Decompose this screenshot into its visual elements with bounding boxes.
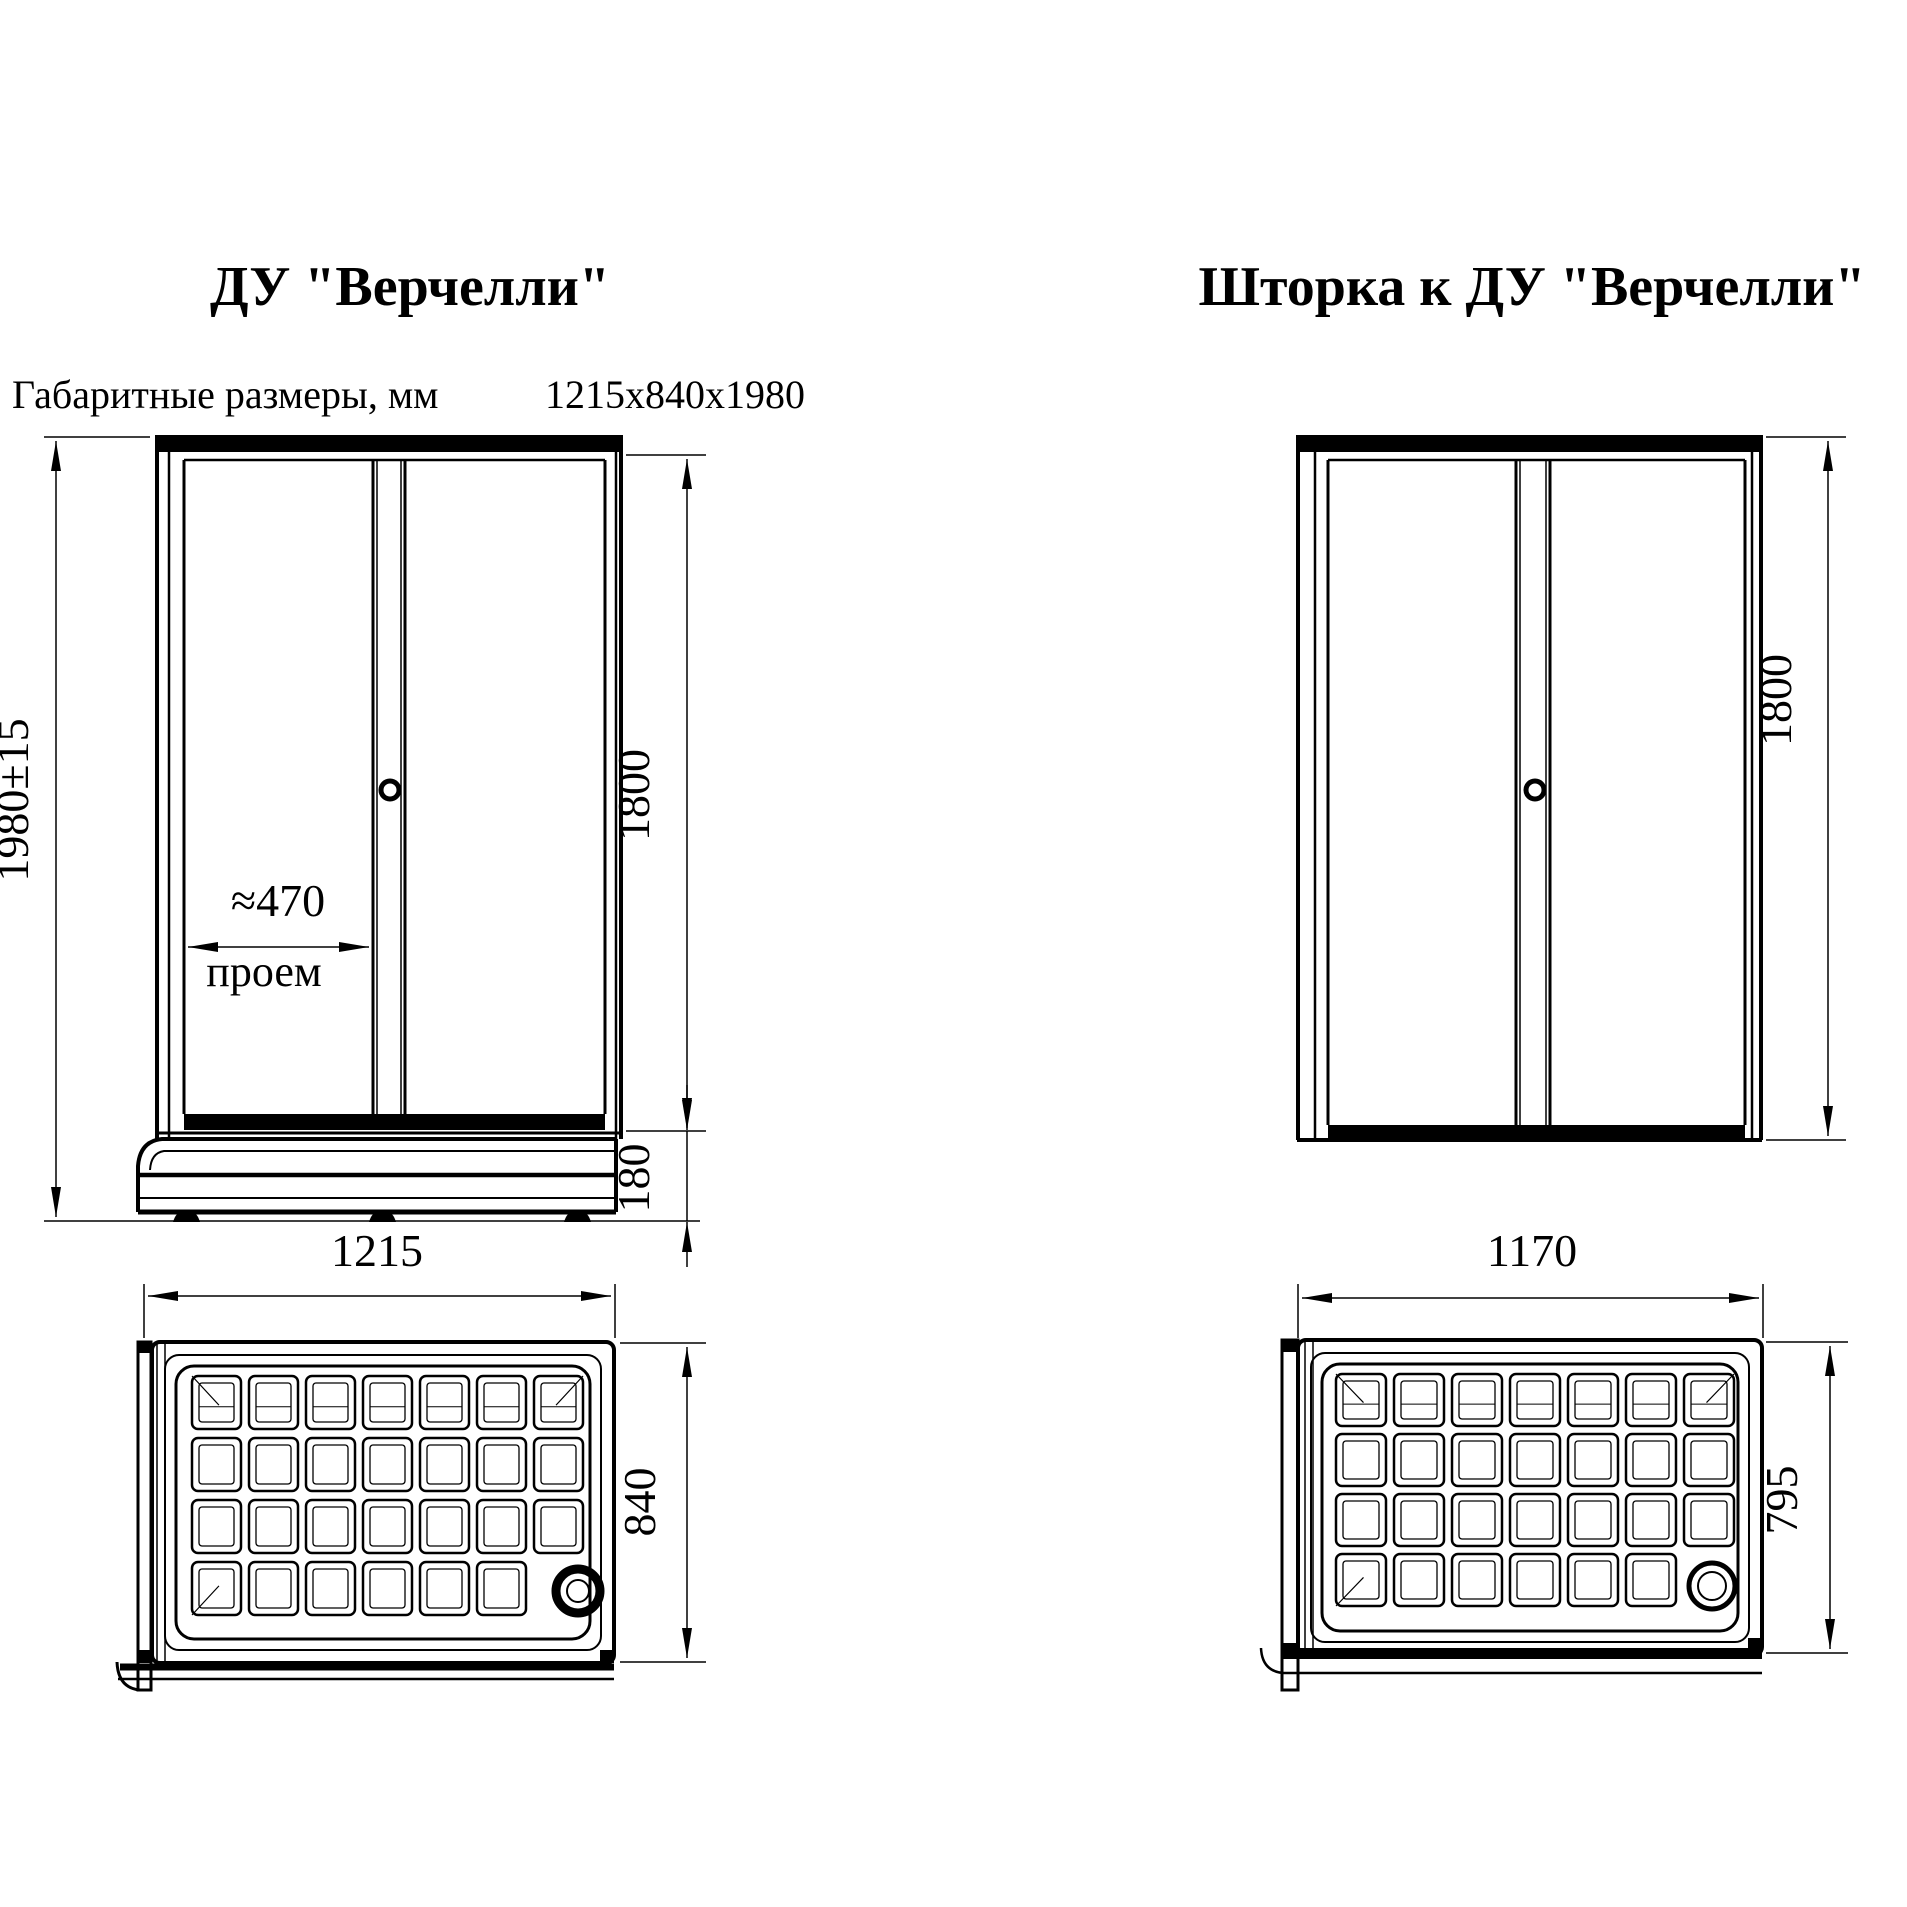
tray-cell-line [484, 1569, 519, 1608]
right-unit-title: Шторка к ДУ "Верчелли" [1198, 256, 1865, 318]
dim-left-width-value: 1215 [331, 1225, 423, 1276]
tray-cell-line [541, 1507, 576, 1546]
tray-cell-line [1401, 1441, 1437, 1479]
left-tray-front [44, 1139, 700, 1222]
tray-cell-line [1575, 1561, 1611, 1599]
dim-left-depth: 840 [614, 1343, 706, 1662]
tray-cell-line [1517, 1501, 1553, 1539]
tray-cell-line [1691, 1501, 1727, 1539]
tray-cell-line [313, 1569, 348, 1608]
tray-cell-line [556, 1376, 583, 1405]
tray-cell-line [1401, 1501, 1437, 1539]
dim-opening: ≈470 проем [188, 875, 369, 996]
dim-left-depth-value: 840 [614, 1468, 665, 1537]
tray-cell-line [1336, 1374, 1364, 1403]
tray-cell-line [541, 1445, 576, 1484]
right-tray-grid [1336, 1374, 1734, 1606]
technical-drawing-page: ДУ "Верчелли" Шторка к ДУ "Верчелли" Габ… [0, 0, 1907, 1907]
tray-cell-line [1633, 1561, 1669, 1599]
tray-cell-line [484, 1507, 519, 1546]
tray-cell-line [1343, 1441, 1379, 1479]
right-plan-view: 1170 [1261, 1225, 1848, 1690]
dim-left-width: 1215 [144, 1225, 615, 1338]
right-bottom-rail [1328, 1125, 1745, 1138]
tray-cell-line [1459, 1501, 1495, 1539]
tray-cell-line [1575, 1501, 1611, 1539]
left-bottom-rail [184, 1114, 605, 1130]
tray-cell-line [427, 1507, 462, 1546]
tray-cell-line [199, 1507, 234, 1546]
tray-cell-line [192, 1376, 219, 1405]
left-plan-view: 1215 [117, 1225, 706, 1690]
tray-cell-line [313, 1383, 348, 1422]
tray-cell-line [1517, 1561, 1553, 1599]
dim-right-door-height-value: 1800 [1750, 654, 1801, 746]
left-tray-grid [192, 1376, 583, 1615]
tray-cell-line [1575, 1381, 1611, 1419]
tray-cell-line [1401, 1381, 1437, 1419]
right-drain-icon [1689, 1563, 1735, 1609]
tray-cell-line [256, 1507, 291, 1546]
tray-cell-line [370, 1445, 405, 1484]
dim-overall-height: 1980±15 [0, 437, 150, 1217]
left-front-view: 1980±15 1800 180 ≈470 проем [0, 435, 706, 1267]
tray-cell-line [1691, 1441, 1727, 1479]
tray-cell-line [1633, 1441, 1669, 1479]
tray-cell-line [1517, 1381, 1553, 1419]
tray-cell-line [484, 1445, 519, 1484]
tray-cell-line [370, 1383, 405, 1422]
tray-cell-line [1517, 1441, 1553, 1479]
door-handle-icon [381, 781, 399, 799]
tray-cell-line [192, 1586, 219, 1615]
left-unit-title: ДУ "Верчелли" [210, 256, 610, 318]
dim-right-depth: 795 [1756, 1342, 1848, 1653]
left-plan-bottom-profile [117, 1650, 614, 1690]
tray-cell-line [1401, 1561, 1437, 1599]
dim-left-door-height-value: 1800 [608, 749, 659, 841]
tray-cell-line [370, 1507, 405, 1546]
tray-cell-line [256, 1569, 291, 1608]
tray-cell-line [370, 1569, 405, 1608]
tray-cell-line [1459, 1441, 1495, 1479]
dim-overall-height-value: 1980±15 [0, 718, 38, 881]
tray-cell-line [1633, 1501, 1669, 1539]
opening-caption: проем [206, 947, 321, 996]
dim-right-width: 1170 [1298, 1225, 1763, 1338]
tray-cell-line [1707, 1374, 1735, 1403]
dim-right-door-height: 1800 [1750, 437, 1846, 1140]
tray-cell-line [1575, 1441, 1611, 1479]
tray-cell-line [313, 1507, 348, 1546]
overall-size-value: 1215x840x1980 [545, 372, 805, 417]
tray-cell-line [484, 1383, 519, 1422]
tray-cell-line [427, 1383, 462, 1422]
drawing-canvas: ДУ "Верчелли" Шторка к ДУ "Верчелли" Габ… [0, 0, 1907, 1907]
right-plan-bottom-profile [1261, 1638, 1762, 1673]
tray-cell-line [256, 1445, 291, 1484]
door-handle-icon [1526, 781, 1544, 799]
left-top-rail [156, 435, 622, 452]
right-tray-outline [1298, 1340, 1762, 1655]
dim-tray-height-value: 180 [608, 1144, 659, 1213]
dim-opening-value: ≈470 [231, 875, 325, 926]
right-top-rail [1297, 435, 1762, 452]
tray-cell-line [427, 1445, 462, 1484]
left-drain-icon [556, 1569, 600, 1613]
tray-cell-line [1343, 1501, 1379, 1539]
tray-cell-line [1459, 1561, 1495, 1599]
tray-cell-line [1459, 1381, 1495, 1419]
tray-cell-line [313, 1445, 348, 1484]
overall-size-label: Габаритные размеры, мм [12, 372, 438, 417]
tray-cell-line [427, 1569, 462, 1608]
tray-cell-line [1336, 1577, 1364, 1606]
dim-right-width-value: 1170 [1487, 1225, 1577, 1276]
tray-cell-line [199, 1445, 234, 1484]
dim-right-depth-value: 795 [1756, 1466, 1807, 1535]
right-front-view: 1800 [1297, 435, 1846, 1140]
tray-cell-line [256, 1383, 291, 1422]
tray-cell-line [1633, 1381, 1669, 1419]
